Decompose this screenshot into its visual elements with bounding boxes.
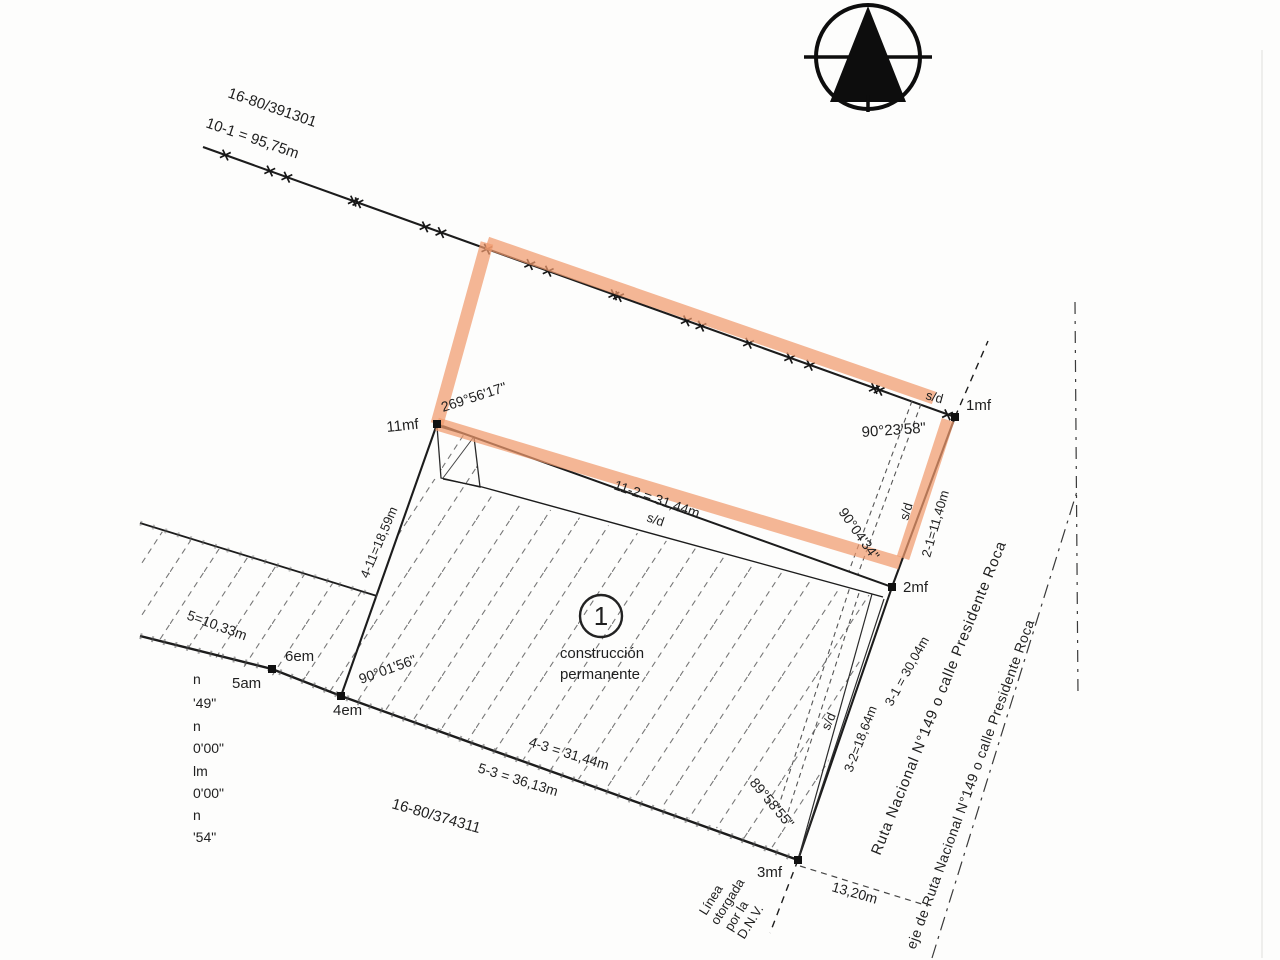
edge-fragment-3: n bbox=[193, 718, 201, 734]
label-point-1mf: 1mf bbox=[966, 397, 992, 414]
point-5am bbox=[268, 665, 276, 673]
edge-fragment-5: lm bbox=[193, 763, 208, 779]
edge-fragment-4: 0'00" bbox=[193, 740, 224, 756]
construction-label-line1: construcción bbox=[560, 645, 644, 662]
edge-fragment-6: 0'00" bbox=[193, 785, 224, 801]
label-point-3mf: 3mf bbox=[757, 864, 783, 881]
label-point-5am: 5am bbox=[232, 675, 261, 692]
edge-fragment-1: n bbox=[193, 671, 201, 687]
survey-plan-drawing: 16-80/391301 10-1 = 95,75m 269°56'17" 11… bbox=[0, 0, 1280, 960]
point-1mf bbox=[951, 413, 959, 421]
construction-label-line2: permanente bbox=[560, 666, 640, 683]
label-point-11mf: 11mf bbox=[386, 416, 421, 436]
point-11mf bbox=[433, 420, 441, 428]
label-point-2mf: 2mf bbox=[903, 579, 929, 596]
point-3mf bbox=[794, 856, 802, 864]
parcel-number: 1 bbox=[594, 601, 608, 631]
label-point-4em: 4em bbox=[333, 702, 362, 719]
point-2mf bbox=[888, 583, 896, 591]
edge-fragment-2: '49" bbox=[193, 695, 216, 711]
point-4em bbox=[337, 692, 345, 700]
survey-plan-page: 16-80/391301 10-1 = 95,75m 269°56'17" 11… bbox=[0, 0, 1280, 960]
edge-fragment-8: '54" bbox=[193, 829, 216, 845]
label-point-6em: 6em bbox=[285, 648, 314, 665]
edge-fragment-7: n bbox=[193, 807, 201, 823]
